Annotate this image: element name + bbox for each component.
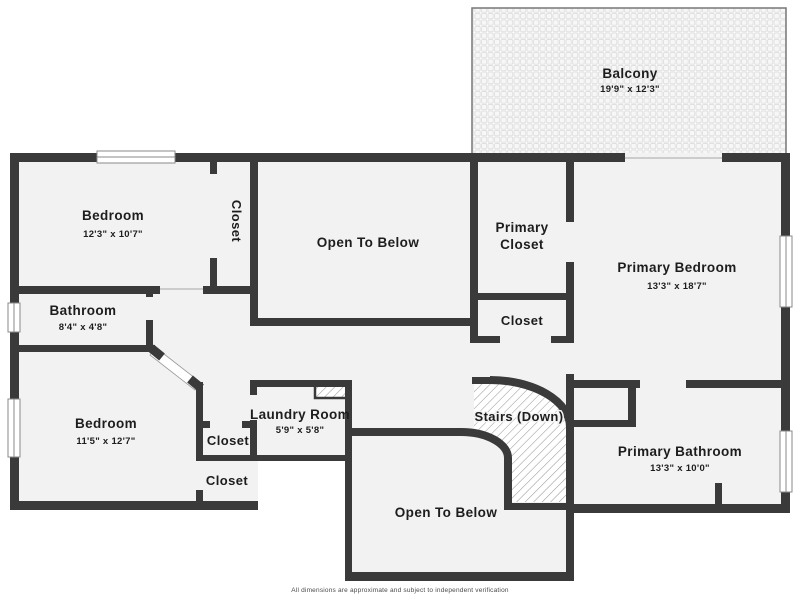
window <box>8 399 20 457</box>
window <box>780 236 792 307</box>
floor-plan: Balcony 19'9" x 12'3" Bedroom 12'3" x 10… <box>0 0 800 600</box>
dims-bedroom-bottom-left: 11'5" x 12'7" <box>76 436 135 447</box>
dims-balcony: 19'9" x 12'3" <box>600 84 660 95</box>
label-bathroom: Bathroom <box>50 303 117 318</box>
window <box>8 303 20 332</box>
dims-bedroom-top-left: 12'3" x 10'7" <box>83 229 143 240</box>
window <box>780 431 792 492</box>
label-bedroom-top-left: Bedroom <box>82 208 144 223</box>
label-primary-bedroom: Primary Bedroom <box>617 260 736 275</box>
label-closet-top-left: Closet <box>229 200 244 242</box>
label-primary-closet-line1: Primary <box>495 220 548 235</box>
label-closet-b: Closet <box>206 473 248 488</box>
label-stairs: Stairs (Down) <box>475 409 564 424</box>
label-primary-closet-line2: Closet <box>500 237 544 252</box>
label-laundry: Laundry Room <box>250 407 350 422</box>
label-balcony: Balcony <box>602 66 657 81</box>
dims-laundry: 5'9" x 5'8" <box>276 425 325 436</box>
label-open-to-below-center: Open To Below <box>317 235 420 250</box>
balcony-area <box>472 8 786 157</box>
dims-primary-bedroom: 13'3" x 18'7" <box>647 281 707 292</box>
dims-bathroom: 8'4" x 4'8" <box>59 322 108 333</box>
window <box>97 151 175 163</box>
label-bedroom-bottom-left: Bedroom <box>75 416 137 431</box>
label-closet-a: Closet <box>207 433 249 448</box>
floor-plan-page: Balcony 19'9" x 12'3" Bedroom 12'3" x 10… <box>0 0 800 600</box>
label-primary-bathroom: Primary Bathroom <box>618 444 742 459</box>
disclaimer-text: All dimensions are approximate and subje… <box>291 587 509 594</box>
dims-primary-bathroom: 13'3" x 10'0" <box>650 463 710 474</box>
label-open-to-below-bottom: Open To Below <box>395 505 498 520</box>
label-closet-hall: Closet <box>501 313 543 328</box>
